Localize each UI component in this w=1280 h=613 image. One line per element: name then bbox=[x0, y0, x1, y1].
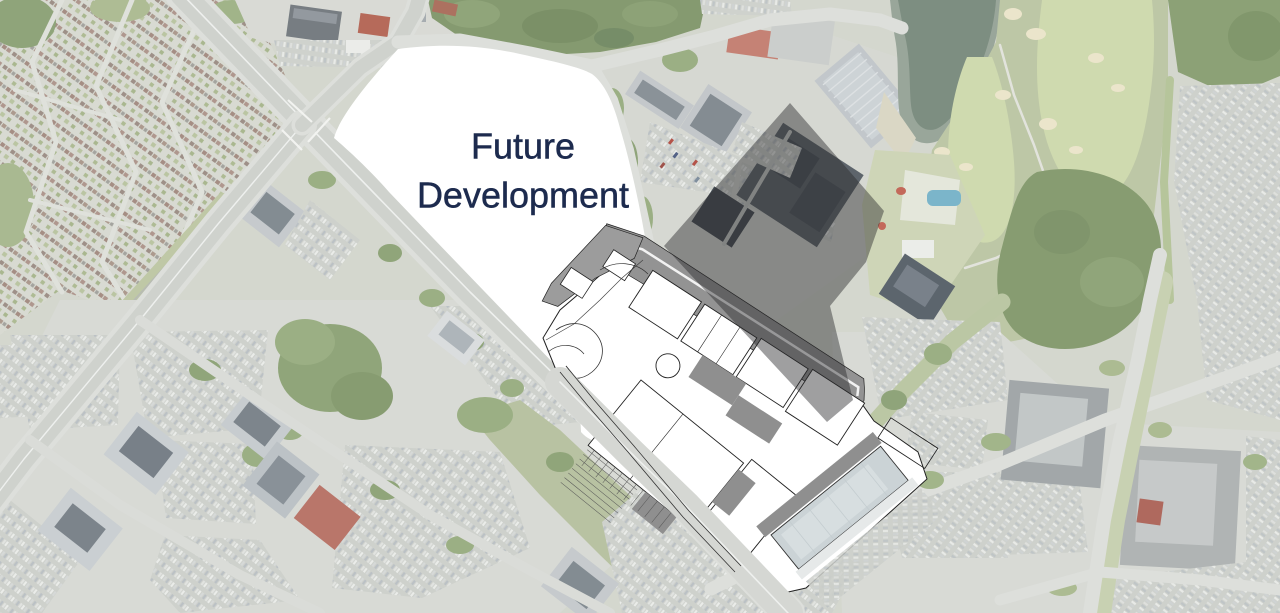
svg-text:Development: Development bbox=[417, 175, 629, 216]
svg-text:Future: Future bbox=[471, 126, 575, 167]
